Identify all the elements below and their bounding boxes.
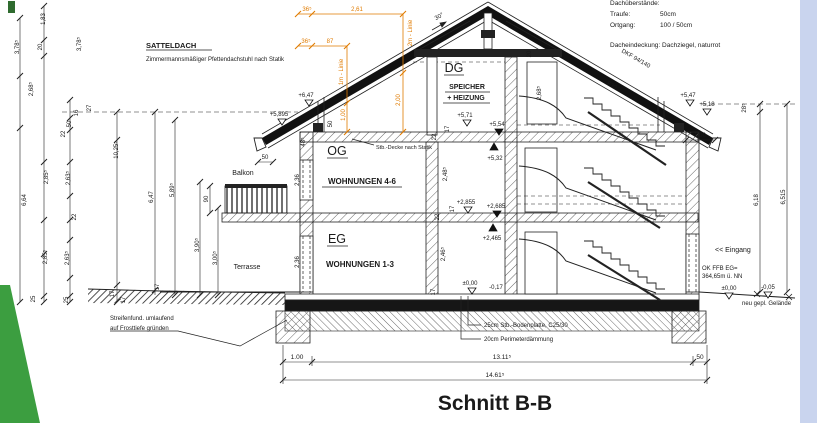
meter-line-1m-label: 1m - Linie — [339, 58, 345, 85]
dim-label: 22 — [72, 213, 78, 220]
roof-info-traufe-value: 50cm — [660, 11, 676, 18]
roof-info-header: Dachüberstände: — [610, 0, 660, 7]
dim-label: 3,00⁵ — [212, 250, 219, 265]
dim-label: 22 — [432, 133, 438, 140]
level-label: +5,18 — [699, 102, 715, 108]
level-label: ±0,00 — [722, 286, 738, 292]
dim-label: 2,68⁵ — [536, 85, 543, 100]
dim-label: 6,64 — [22, 194, 28, 206]
ok-ffb-line2: 364,65m ü. NN — [702, 274, 742, 280]
room-use-og: WOHNUNGEN 4-6 — [328, 177, 397, 186]
dim-label: 2,85⁵ — [42, 249, 49, 264]
dim-label: 10,25⁵ — [113, 141, 120, 159]
gelaende-label: neu gepl. Gelände — [742, 301, 792, 307]
dim-label: 28⁵ — [741, 103, 748, 113]
terrasse-label: Terrasse — [234, 264, 261, 271]
satteldach-note: Zimmermannsmäßiger Pfettendachstuhl nach… — [146, 57, 285, 63]
dim-label: 3,90⁵ — [194, 237, 201, 252]
balcony-railing — [225, 184, 287, 213]
dim-label: 3,78⁵ — [76, 36, 83, 51]
dim-label: 2,68⁵ — [28, 81, 35, 96]
dim-label: 2,85⁵ — [43, 169, 50, 184]
dim-label: 2,36 — [295, 174, 301, 186]
satteldach-title: SATTELDACH — [146, 41, 196, 50]
dim-label: 6,515 — [781, 189, 787, 205]
decke-note: Stb.-Decke nach Statik — [376, 145, 432, 151]
level-label: +5,47 — [680, 93, 696, 99]
level-label: +2,855 — [457, 200, 476, 206]
dim-label: 90 — [204, 195, 210, 202]
dim-label: 25 — [31, 295, 37, 302]
dim-label: 50 — [262, 155, 269, 161]
dim-label: 6,18 — [754, 194, 760, 206]
dim-label: 17 — [445, 125, 451, 132]
dim-label: 14.61⁵ — [486, 372, 505, 379]
dim-label: 17 — [121, 296, 127, 303]
dim-label: 25 — [64, 296, 70, 303]
dim-label: 50 — [328, 120, 334, 127]
section-drawing: 1,83 3,78⁵ 20 3,78⁵ 2,68⁵ 27 16 50 22 10… — [0, 0, 817, 423]
dim-label: 17 — [431, 288, 437, 295]
level-label: +5,71 — [457, 113, 473, 119]
bodenplatte-note: 25cm Stb.-Bodenplatte, C25/30 — [484, 323, 568, 329]
green-corner-square — [8, 1, 15, 13]
dim-label: 36⁵ — [302, 6, 312, 13]
dim-label: 3,78⁵ — [14, 39, 21, 54]
dim-label: 1.00 — [291, 354, 304, 361]
room-use-heizung: + HEIZUNG — [447, 95, 485, 102]
dim-label: 20 — [527, 50, 533, 57]
dim-label: 48⁵ — [300, 137, 307, 147]
level-label: +5,32 — [487, 156, 503, 162]
balkon-label: Balkon — [232, 170, 254, 177]
dim-label: 1,83 — [41, 13, 47, 25]
level-label: ±0,00 — [463, 281, 479, 287]
room-use-speicher: SPEICHER — [449, 84, 485, 91]
dim-label: 87 — [327, 39, 334, 45]
level-label: +5,895 — [270, 112, 289, 118]
desktop-strip — [800, 0, 817, 423]
roof-info-deckung: Dacheindeckung: Dachziegel, naturrot — [610, 42, 720, 49]
level-label: +6,47 — [298, 93, 314, 99]
roof-info-ortgang-value: 100 / 50cm — [660, 22, 692, 29]
level-label: -0,17 — [489, 285, 503, 291]
dim-label: 36⁵ — [301, 38, 311, 45]
daemmung-note: 20cm Perimeterdämmung — [484, 337, 553, 343]
dim-label: 2,63⁵ — [65, 170, 72, 185]
dim-label: 1,00 — [341, 109, 347, 121]
dim-label: 6,47 — [149, 191, 155, 203]
level-label: +2,465 — [483, 236, 502, 242]
dim-label: 2,36 — [295, 256, 301, 268]
level-label: +2,685 — [487, 204, 506, 210]
room-label-eg: EG — [328, 232, 346, 246]
eingang-label: << Eingang — [715, 247, 751, 254]
fundament-note-1: Streifenfund. umlaufend — [110, 316, 174, 322]
dim-label: 13.11⁵ — [493, 354, 512, 361]
room-label-og: OG — [327, 144, 346, 158]
dim-label: 20 — [38, 43, 44, 50]
dim-label: 17 — [155, 283, 161, 290]
dim-label: 2,63⁵ — [64, 250, 71, 265]
dim-label: 50 — [696, 354, 704, 361]
dim-label: 2,00 — [396, 94, 402, 106]
dim-label: 1,00 — [694, 133, 706, 139]
dim-label: 16 — [74, 109, 80, 116]
dim-label: 27 — [87, 104, 93, 111]
room-label-dg: DG — [445, 61, 464, 75]
roof-info-ortgang-label: Ortgang: — [610, 22, 635, 29]
fundament-note-2: auf Frosttiefe gründen — [110, 326, 169, 332]
dim-label: 5,89⁵ — [169, 182, 176, 197]
drawing-title: Schnitt B-B — [438, 392, 552, 415]
meter-line-2m-label: 2m - Linie — [408, 19, 414, 46]
dim-label: 17 — [450, 205, 456, 212]
dim-label: 50 — [67, 120, 73, 127]
ok-ffb-line1: OK FFB EG= — [702, 266, 738, 272]
dim-label: 2,46⁵ — [440, 246, 447, 261]
level-label: -0,05 — [761, 285, 775, 291]
level-label: +5,54 — [489, 122, 505, 128]
dim-label: 22 — [435, 213, 441, 220]
dim-label: 22 — [61, 130, 67, 137]
room-use-eg: WOHNUNGEN 1-3 — [326, 260, 395, 269]
dim-label: 2,48⁵ — [442, 166, 449, 181]
roof-info-traufe-label: Traufe: — [610, 11, 631, 18]
dim-label: 2,61 — [351, 7, 363, 13]
dim-label: 17 — [110, 290, 116, 297]
